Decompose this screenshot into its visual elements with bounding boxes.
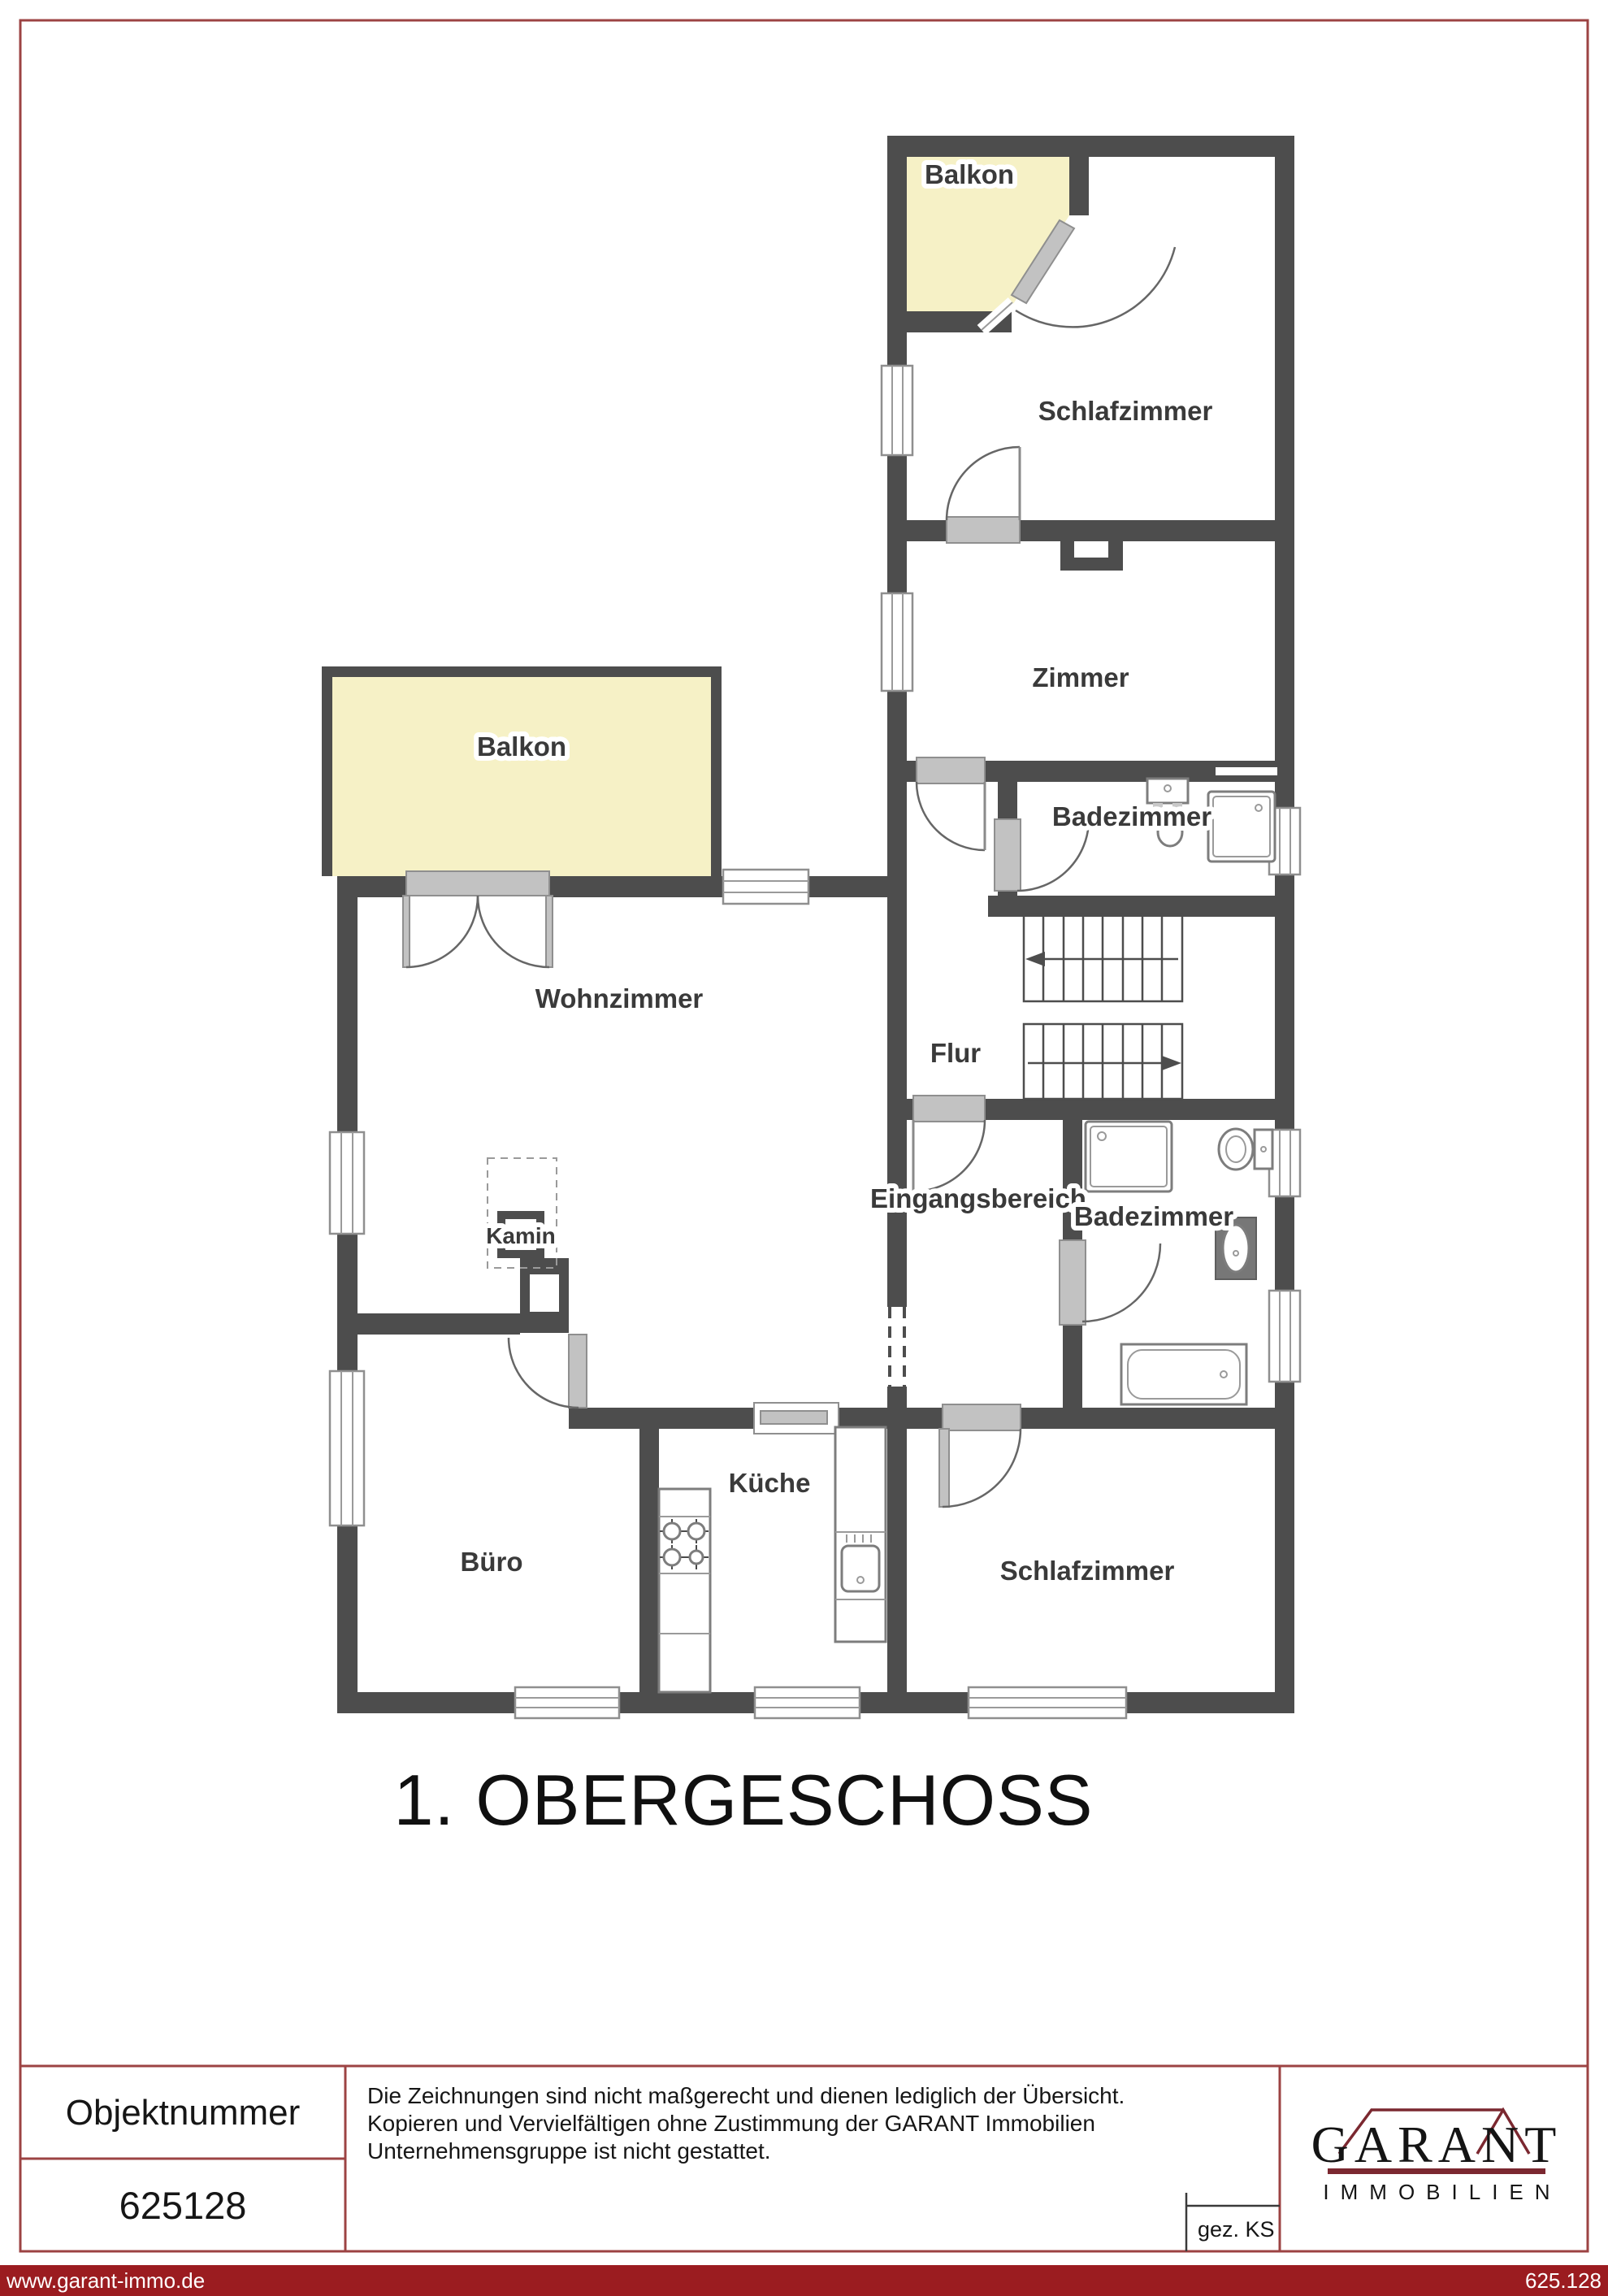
disclaimer: Die Zeichnungen sind nicht maßgerecht un… <box>367 2083 1125 2164</box>
door-icon <box>509 1335 587 1408</box>
windows <box>330 366 1300 1718</box>
toilet-icon <box>1219 1129 1272 1170</box>
stairs-icon <box>1024 915 1182 1099</box>
logo-name: GARANT <box>1311 2116 1562 2173</box>
door-icon <box>917 757 985 850</box>
disclaimer-line-2: Kopieren und Vervielfältigen ohne Zustim… <box>367 2111 1095 2136</box>
bottom-bar-number: 625.128 <box>1525 2268 1601 2293</box>
page-border <box>20 20 1588 2251</box>
bottom-bar: www.garant-immo.de 625.128 <box>0 2265 1608 2296</box>
object-number-value: 625128 <box>119 2184 247 2227</box>
shower-icon <box>1208 792 1275 862</box>
room-label-buero: Büro <box>461 1547 523 1577</box>
door-icon <box>947 447 1020 543</box>
window-icon <box>882 366 912 455</box>
door-icon <box>939 1404 1021 1507</box>
dashed-opening <box>887 1307 907 1387</box>
window-icon <box>755 1687 860 1718</box>
walls <box>337 136 1294 1713</box>
room-label-badezimmer-lower: Badezimmer <box>1074 1201 1233 1231</box>
door-icon <box>1060 1240 1160 1325</box>
drawn-by-text: gez. KS <box>1198 2217 1275 2242</box>
room-label-kueche: Küche <box>729 1468 811 1498</box>
shower-icon <box>1086 1122 1172 1191</box>
room-label-balkon-left: Balkon <box>477 731 566 762</box>
floor-title: 1. OBERGESCHOSS <box>393 1760 1093 1840</box>
room-label-kamin: Kamin <box>486 1223 556 1248</box>
footer-table: Objektnummer 625128 Die Zeichnungen sind… <box>20 2066 1588 2251</box>
room-label-wohnzimmer: Wohnzimmer <box>535 983 704 1013</box>
balcony-left-area <box>322 666 722 876</box>
window-icon <box>330 1371 364 1526</box>
window-icon <box>1269 1130 1300 1196</box>
room-label-badezimmer-upper: Badezimmer <box>1052 801 1211 831</box>
fireplace-icon <box>488 1158 557 1268</box>
room-label-schlafzimmer-bottom: Schlafzimmer <box>1000 1556 1175 1586</box>
floor-plan-page: Balkon Schlafzimmer Zimmer Badezimmer Fl… <box>0 0 1608 2296</box>
window-icon <box>515 1687 619 1718</box>
garant-logo: GARANT IMMOBILIEN <box>1311 2110 1562 2204</box>
room-label-schlafzimmer-top: Schlafzimmer <box>1038 396 1213 426</box>
room-label-flur: Flur <box>930 1038 981 1068</box>
bathtub-icon <box>1121 1344 1246 1404</box>
disclaimer-line-3: Unternehmensgruppe ist nicht gestattet. <box>367 2138 771 2164</box>
door-icon <box>913 1096 985 1191</box>
room-label-zimmer: Zimmer <box>1032 662 1129 692</box>
floor-plan-canvas: Balkon Schlafzimmer Zimmer Badezimmer Fl… <box>0 0 1608 2296</box>
drawn-by-box: gez. KS <box>1186 2193 1280 2251</box>
window-icon <box>330 1132 364 1234</box>
disclaimer-line-1: Die Zeichnungen sind nicht maßgerecht un… <box>367 2083 1125 2108</box>
bottom-bar-url: www.garant-immo.de <box>6 2268 205 2293</box>
window-icon <box>723 870 808 904</box>
logo-subtitle: IMMOBILIEN <box>1323 2180 1561 2204</box>
door-icon <box>403 871 553 967</box>
room-label-balkon-top: Balkon <box>925 159 1014 189</box>
room-label-eingangsbereich: Eingangsbereich <box>870 1183 1086 1213</box>
window-icon <box>882 593 912 691</box>
object-number-label: Objektnummer <box>66 2093 301 2133</box>
window-icon <box>969 1687 1126 1718</box>
window-icon <box>1269 1291 1300 1382</box>
logo-underline <box>1328 2168 1545 2174</box>
door-icon <box>754 1403 839 1434</box>
